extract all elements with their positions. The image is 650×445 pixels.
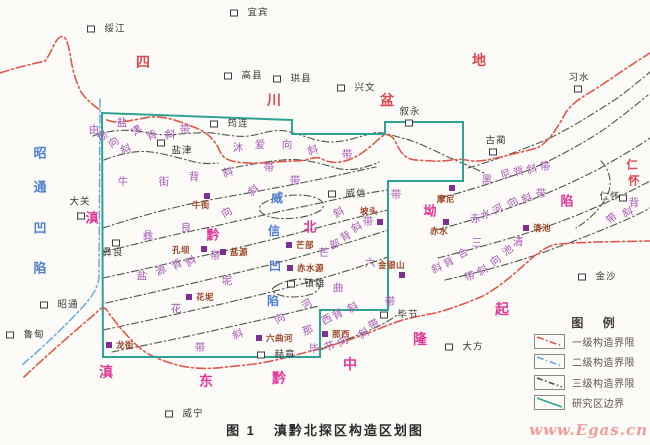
band-char: 背 bbox=[189, 172, 200, 183]
band-char: 带 bbox=[540, 162, 551, 173]
figure-title: 滇黔北探区构造区划图 bbox=[274, 423, 424, 438]
region-char: 黔 bbox=[272, 371, 286, 385]
town-marker-square bbox=[186, 294, 192, 300]
town-marker-square bbox=[106, 342, 112, 348]
band-char: 清 bbox=[513, 237, 524, 248]
city-marker-square bbox=[405, 120, 413, 127]
city-label: 赫章 bbox=[274, 350, 295, 360]
band-char: 沐 bbox=[233, 143, 244, 154]
city-marker-square bbox=[210, 121, 218, 128]
city-label: 金沙 bbox=[595, 272, 616, 282]
legend-item: 一级构造界限 bbox=[527, 331, 649, 352]
city-label: 高县 bbox=[241, 71, 262, 81]
town-label: 六曲河 bbox=[266, 334, 293, 343]
band-char: 街 bbox=[159, 177, 170, 188]
town-marker-square bbox=[204, 193, 210, 199]
region-char: 滇 bbox=[99, 365, 113, 379]
city-marker-square bbox=[257, 352, 265, 359]
band-char: 盐 bbox=[117, 118, 128, 129]
region-char: 北 bbox=[303, 221, 316, 234]
region-char: 凹 bbox=[269, 260, 281, 272]
legend-item-label: 三级构造界限 bbox=[572, 375, 635, 390]
region-char: 凹 bbox=[33, 222, 46, 235]
town-label: 坡头 bbox=[360, 207, 378, 216]
town-label: 芒部 bbox=[296, 241, 314, 250]
town-marker-square bbox=[377, 219, 383, 225]
band-char: 牛 bbox=[118, 177, 129, 188]
city-marker-square bbox=[273, 76, 281, 83]
city-label: 盐津 bbox=[171, 146, 192, 156]
town-label: 清池 bbox=[533, 224, 551, 233]
tectonic-map-figure: 绥江宜宾高县珙县兴文叙永习水古蔺筠连盐津大关彝良威信仁怀镇雄昭通鲁甸威宁赫章毕节… bbox=[0, 0, 650, 445]
band-char: 彝 bbox=[143, 231, 154, 242]
region-char: 陷 bbox=[33, 262, 46, 275]
city-marker-square bbox=[230, 10, 238, 17]
city-marker-square bbox=[328, 191, 336, 198]
city-label: 仁怀 bbox=[599, 192, 620, 202]
band-char: 爱 bbox=[255, 140, 266, 151]
city-label: 鲁甸 bbox=[23, 330, 44, 340]
band-char: 斜 bbox=[526, 164, 539, 177]
legend-item: 研究区边界 bbox=[527, 393, 649, 414]
city-label: 昭通 bbox=[57, 300, 78, 310]
watermark-text: www.Egas.cn bbox=[529, 421, 648, 439]
town-label: 金银山 bbox=[378, 261, 405, 270]
city-marker-square bbox=[287, 281, 295, 288]
city-label: 大关 bbox=[69, 197, 90, 207]
legend-swatch-level3 bbox=[534, 375, 565, 390]
town-marker-square bbox=[523, 225, 529, 231]
region-char: 信 bbox=[268, 225, 280, 237]
city-label: 叙永 bbox=[399, 107, 420, 117]
city-marker-square bbox=[578, 274, 586, 281]
town-marker-square bbox=[220, 249, 226, 255]
band-char: 斜 bbox=[307, 145, 320, 158]
town-marker-square bbox=[322, 331, 328, 337]
legend-swatch-level2 bbox=[534, 354, 565, 369]
city-marker-square bbox=[337, 85, 345, 92]
city-marker-square bbox=[87, 26, 95, 33]
region-char: 地 bbox=[472, 53, 486, 67]
city-marker-square bbox=[574, 86, 582, 93]
town-marker-square bbox=[399, 272, 405, 278]
town-label: 花坭 bbox=[196, 293, 214, 302]
legend-item-label: 一级构造界限 bbox=[572, 334, 635, 349]
band-char: 六 bbox=[365, 258, 376, 269]
band-char: 带 bbox=[180, 125, 191, 136]
city-marker-square bbox=[40, 302, 48, 309]
figure-number: 图 1 bbox=[226, 423, 256, 438]
town-label: 孔坝 bbox=[172, 246, 190, 255]
region-char: 仁 bbox=[626, 160, 638, 172]
city-label: 习水 bbox=[568, 73, 589, 83]
legend-swatch-level1 bbox=[534, 334, 565, 349]
city-label: 镇雄 bbox=[304, 279, 325, 289]
city-marker-square bbox=[489, 149, 497, 156]
band-char: 花 bbox=[171, 304, 182, 315]
band-char: 带 bbox=[210, 251, 221, 262]
region-char: 四 bbox=[136, 55, 150, 69]
band-char: 黑 bbox=[482, 175, 493, 186]
city-label: 兴文 bbox=[354, 83, 375, 93]
region-char: 怀 bbox=[628, 176, 640, 188]
town-label: 赤水 bbox=[430, 227, 448, 236]
band-char: 坭 bbox=[222, 276, 233, 287]
town-marker-square bbox=[449, 185, 455, 191]
town-label: 龙街 bbox=[116, 341, 134, 350]
city-label: 彝良 bbox=[102, 248, 123, 258]
region-char: 通 bbox=[33, 181, 46, 194]
city-marker-square bbox=[445, 344, 453, 351]
city-label: 筠连 bbox=[227, 119, 248, 129]
town-marker-square bbox=[286, 242, 292, 248]
town-label: 赤水源 bbox=[297, 264, 324, 273]
city-label: 古蔺 bbox=[485, 136, 506, 146]
legend-item-label: 二级构造界限 bbox=[572, 354, 635, 369]
region-char: 起 bbox=[495, 302, 509, 316]
town-marker-square bbox=[443, 219, 449, 225]
city-label: 珙县 bbox=[290, 74, 311, 84]
region-char: 坳 bbox=[423, 205, 436, 218]
band-char: 带 bbox=[264, 163, 275, 174]
town-label: 牛街 bbox=[192, 201, 210, 210]
band-char: 带 bbox=[342, 150, 353, 161]
band-char: 盐 bbox=[137, 271, 148, 282]
legend-item: 三级构造界限 bbox=[527, 372, 649, 393]
region-char: 中 bbox=[343, 357, 357, 371]
region-char: 盆 bbox=[380, 93, 394, 107]
city-label: 威宁 bbox=[182, 409, 203, 419]
band-char: 毕 bbox=[309, 344, 320, 355]
band-char: 带 bbox=[363, 217, 374, 228]
city-marker-square bbox=[112, 240, 120, 247]
town-marker-square bbox=[287, 265, 293, 271]
region-char: 隆 bbox=[413, 332, 427, 346]
band-char: 带 bbox=[195, 343, 206, 354]
region-char: 陷 bbox=[267, 295, 279, 307]
band-char: 斜 bbox=[165, 130, 176, 141]
city-marker-square bbox=[6, 332, 14, 339]
city-label: 威信 bbox=[345, 189, 366, 199]
city-marker-square bbox=[165, 411, 173, 418]
city-marker-square bbox=[224, 73, 232, 80]
region-char: 东 bbox=[199, 374, 213, 388]
town-label: 盐源 bbox=[230, 248, 248, 257]
legend-item-label: 研究区边界 bbox=[572, 395, 625, 410]
band-char: 带 bbox=[290, 176, 301, 187]
city-marker-square bbox=[380, 312, 388, 319]
region-char: 陷 bbox=[560, 195, 573, 208]
city-label: 大方 bbox=[462, 342, 483, 352]
legend-swatch-boundary bbox=[534, 395, 565, 410]
band-char: 曲 bbox=[333, 283, 344, 294]
town-label: 摩尼 bbox=[437, 195, 455, 204]
band-char: 带 bbox=[536, 189, 547, 200]
town-marker-square bbox=[201, 246, 207, 252]
band-char: 斜 bbox=[222, 167, 235, 180]
city-marker-square bbox=[77, 213, 85, 220]
city-label: 绥江 bbox=[104, 24, 125, 34]
band-char: 赤 bbox=[470, 214, 481, 225]
band-char: 带 bbox=[391, 190, 402, 201]
legend-title: 图 例 bbox=[545, 314, 649, 331]
legend-panel: 图 例 一级构造界限二级构造界限三级构造界限研究区边界 bbox=[527, 314, 649, 413]
region-char: 川 bbox=[267, 93, 281, 107]
region-char: 威 bbox=[271, 192, 283, 204]
band-char: 良 bbox=[181, 223, 192, 234]
band-char: 向 bbox=[282, 140, 293, 151]
region-char: 昭 bbox=[33, 147, 46, 160]
city-label: 宜宾 bbox=[247, 8, 268, 18]
region-char: 黔 bbox=[206, 229, 219, 242]
band-char: 芒 bbox=[319, 248, 330, 259]
region-char: 滇 bbox=[85, 212, 98, 225]
legend-item: 二级构造界限 bbox=[527, 352, 649, 373]
band-char: 带 bbox=[385, 297, 396, 308]
town-marker-square bbox=[256, 335, 262, 341]
band-char: 三 bbox=[472, 238, 483, 249]
city-label: 毕节 bbox=[397, 310, 418, 320]
